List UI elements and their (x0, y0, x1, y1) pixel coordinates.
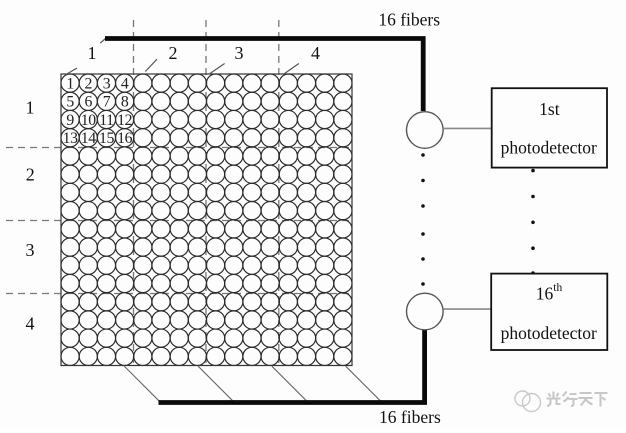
svg-text:12: 12 (117, 112, 132, 129)
svg-text:1: 1 (66, 76, 74, 93)
svg-text:16 fibers: 16 fibers (378, 9, 440, 29)
svg-text:photodetector: photodetector (501, 138, 597, 158)
svg-text:4: 4 (121, 76, 129, 93)
svg-text:5: 5 (66, 94, 74, 111)
svg-text:11: 11 (99, 112, 113, 129)
svg-text:photodetector: photodetector (501, 323, 597, 343)
svg-text:3: 3 (235, 43, 244, 63)
svg-text:4: 4 (26, 313, 35, 333)
svg-text:1st: 1st (539, 99, 560, 119)
svg-text:8: 8 (121, 94, 129, 111)
svg-text:9: 9 (66, 112, 74, 129)
svg-text:1: 1 (88, 43, 97, 63)
svg-text:4: 4 (311, 43, 320, 63)
svg-text:7: 7 (103, 94, 111, 111)
svg-text:14: 14 (81, 130, 96, 147)
svg-text:2: 2 (26, 164, 35, 184)
svg-text:2: 2 (85, 76, 93, 93)
svg-text:16 fibers: 16 fibers (379, 407, 441, 427)
svg-text:1: 1 (26, 98, 35, 118)
svg-text:13: 13 (63, 130, 78, 147)
svg-text:3: 3 (103, 76, 111, 93)
svg-text:3: 3 (26, 240, 35, 260)
svg-text:15: 15 (99, 130, 114, 147)
svg-text:16: 16 (117, 130, 132, 147)
svg-text:6: 6 (85, 94, 93, 111)
svg-text:2: 2 (169, 43, 178, 63)
svg-text:10: 10 (81, 112, 96, 129)
